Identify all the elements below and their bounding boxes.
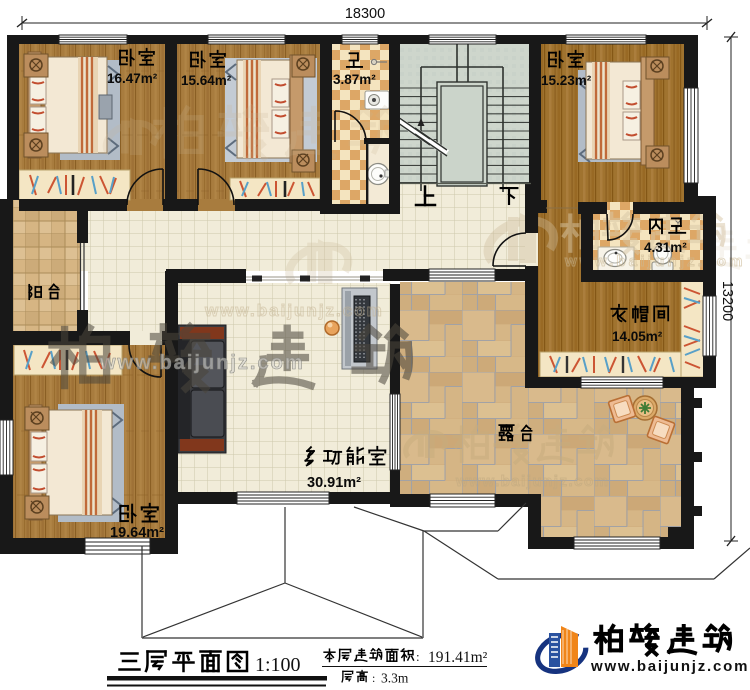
svg-text::: : (416, 649, 420, 664)
svg-text:14.05m²: 14.05m² (612, 329, 663, 344)
svg-text:191.41m²: 191.41m² (428, 649, 488, 666)
svg-text:www.baijunjz.com: www.baijunjz.com (99, 352, 305, 374)
svg-text:30.91m²: 30.91m² (307, 475, 361, 491)
svg-text::: : (372, 671, 375, 685)
svg-text:www.baijunjz.com: www.baijunjz.com (455, 473, 609, 490)
svg-text:3.87m²: 3.87m² (333, 72, 376, 87)
svg-text:15.64m²: 15.64m² (181, 73, 232, 88)
svg-text:18300: 18300 (345, 6, 385, 22)
svg-text:4.31m²: 4.31m² (644, 240, 687, 255)
svg-text:www.baijunjz.com: www.baijunjz.com (590, 658, 749, 675)
svg-text:1:100: 1:100 (255, 654, 301, 676)
svg-text:3.3m: 3.3m (381, 671, 409, 686)
svg-text:19.64m²: 19.64m² (110, 525, 164, 541)
svg-text:15.23m²: 15.23m² (541, 73, 592, 88)
svg-text:www.baijunjz.com: www.baijunjz.com (204, 301, 384, 320)
svg-text:16.47m²: 16.47m² (107, 71, 158, 86)
svg-text:13200: 13200 (719, 281, 735, 321)
